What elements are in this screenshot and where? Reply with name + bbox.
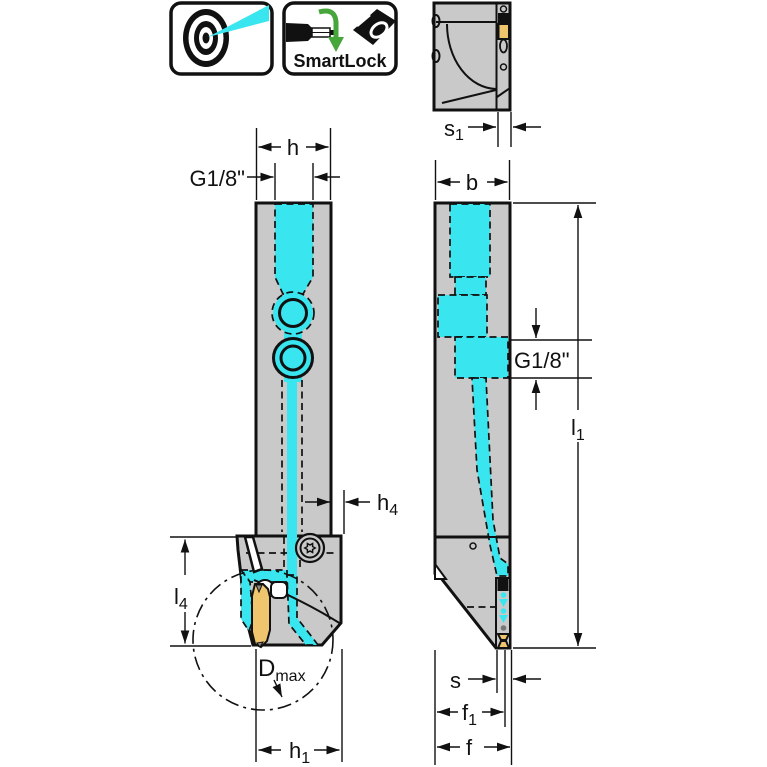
dim-g18-front-label: G1/8"	[189, 166, 245, 191]
torx-screw-icon	[296, 534, 324, 562]
top-view-insert	[499, 24, 510, 39]
g18-port-side	[455, 337, 508, 378]
coolant-spray-icon	[171, 3, 272, 74]
smartlock-label: SmartLock	[293, 51, 387, 71]
technical-drawing-page: SmartLock s1	[0, 0, 767, 767]
screwdriver-handle-icon	[286, 23, 312, 42]
dim-f-label: f	[466, 735, 473, 760]
dim-s-label: s	[450, 668, 461, 693]
clamp-tip	[498, 578, 509, 591]
side-insert-top	[498, 634, 509, 640]
pin-dot	[501, 625, 507, 631]
target-center	[203, 33, 210, 44]
dim-g18-side-label: G1/8"	[514, 348, 570, 373]
dim-b-label: b	[466, 170, 478, 195]
cutting-insert	[252, 584, 270, 647]
blade-strip	[496, 578, 510, 648]
smartlock-icon: SmartLock	[284, 3, 396, 74]
tool-holder-drawing: SmartLock s1	[0, 0, 767, 767]
canvas	[0, 0, 767, 767]
top-view-clamp	[498, 13, 509, 24]
dim-h-label: h	[287, 135, 299, 160]
side-insert-bottom	[498, 641, 509, 648]
